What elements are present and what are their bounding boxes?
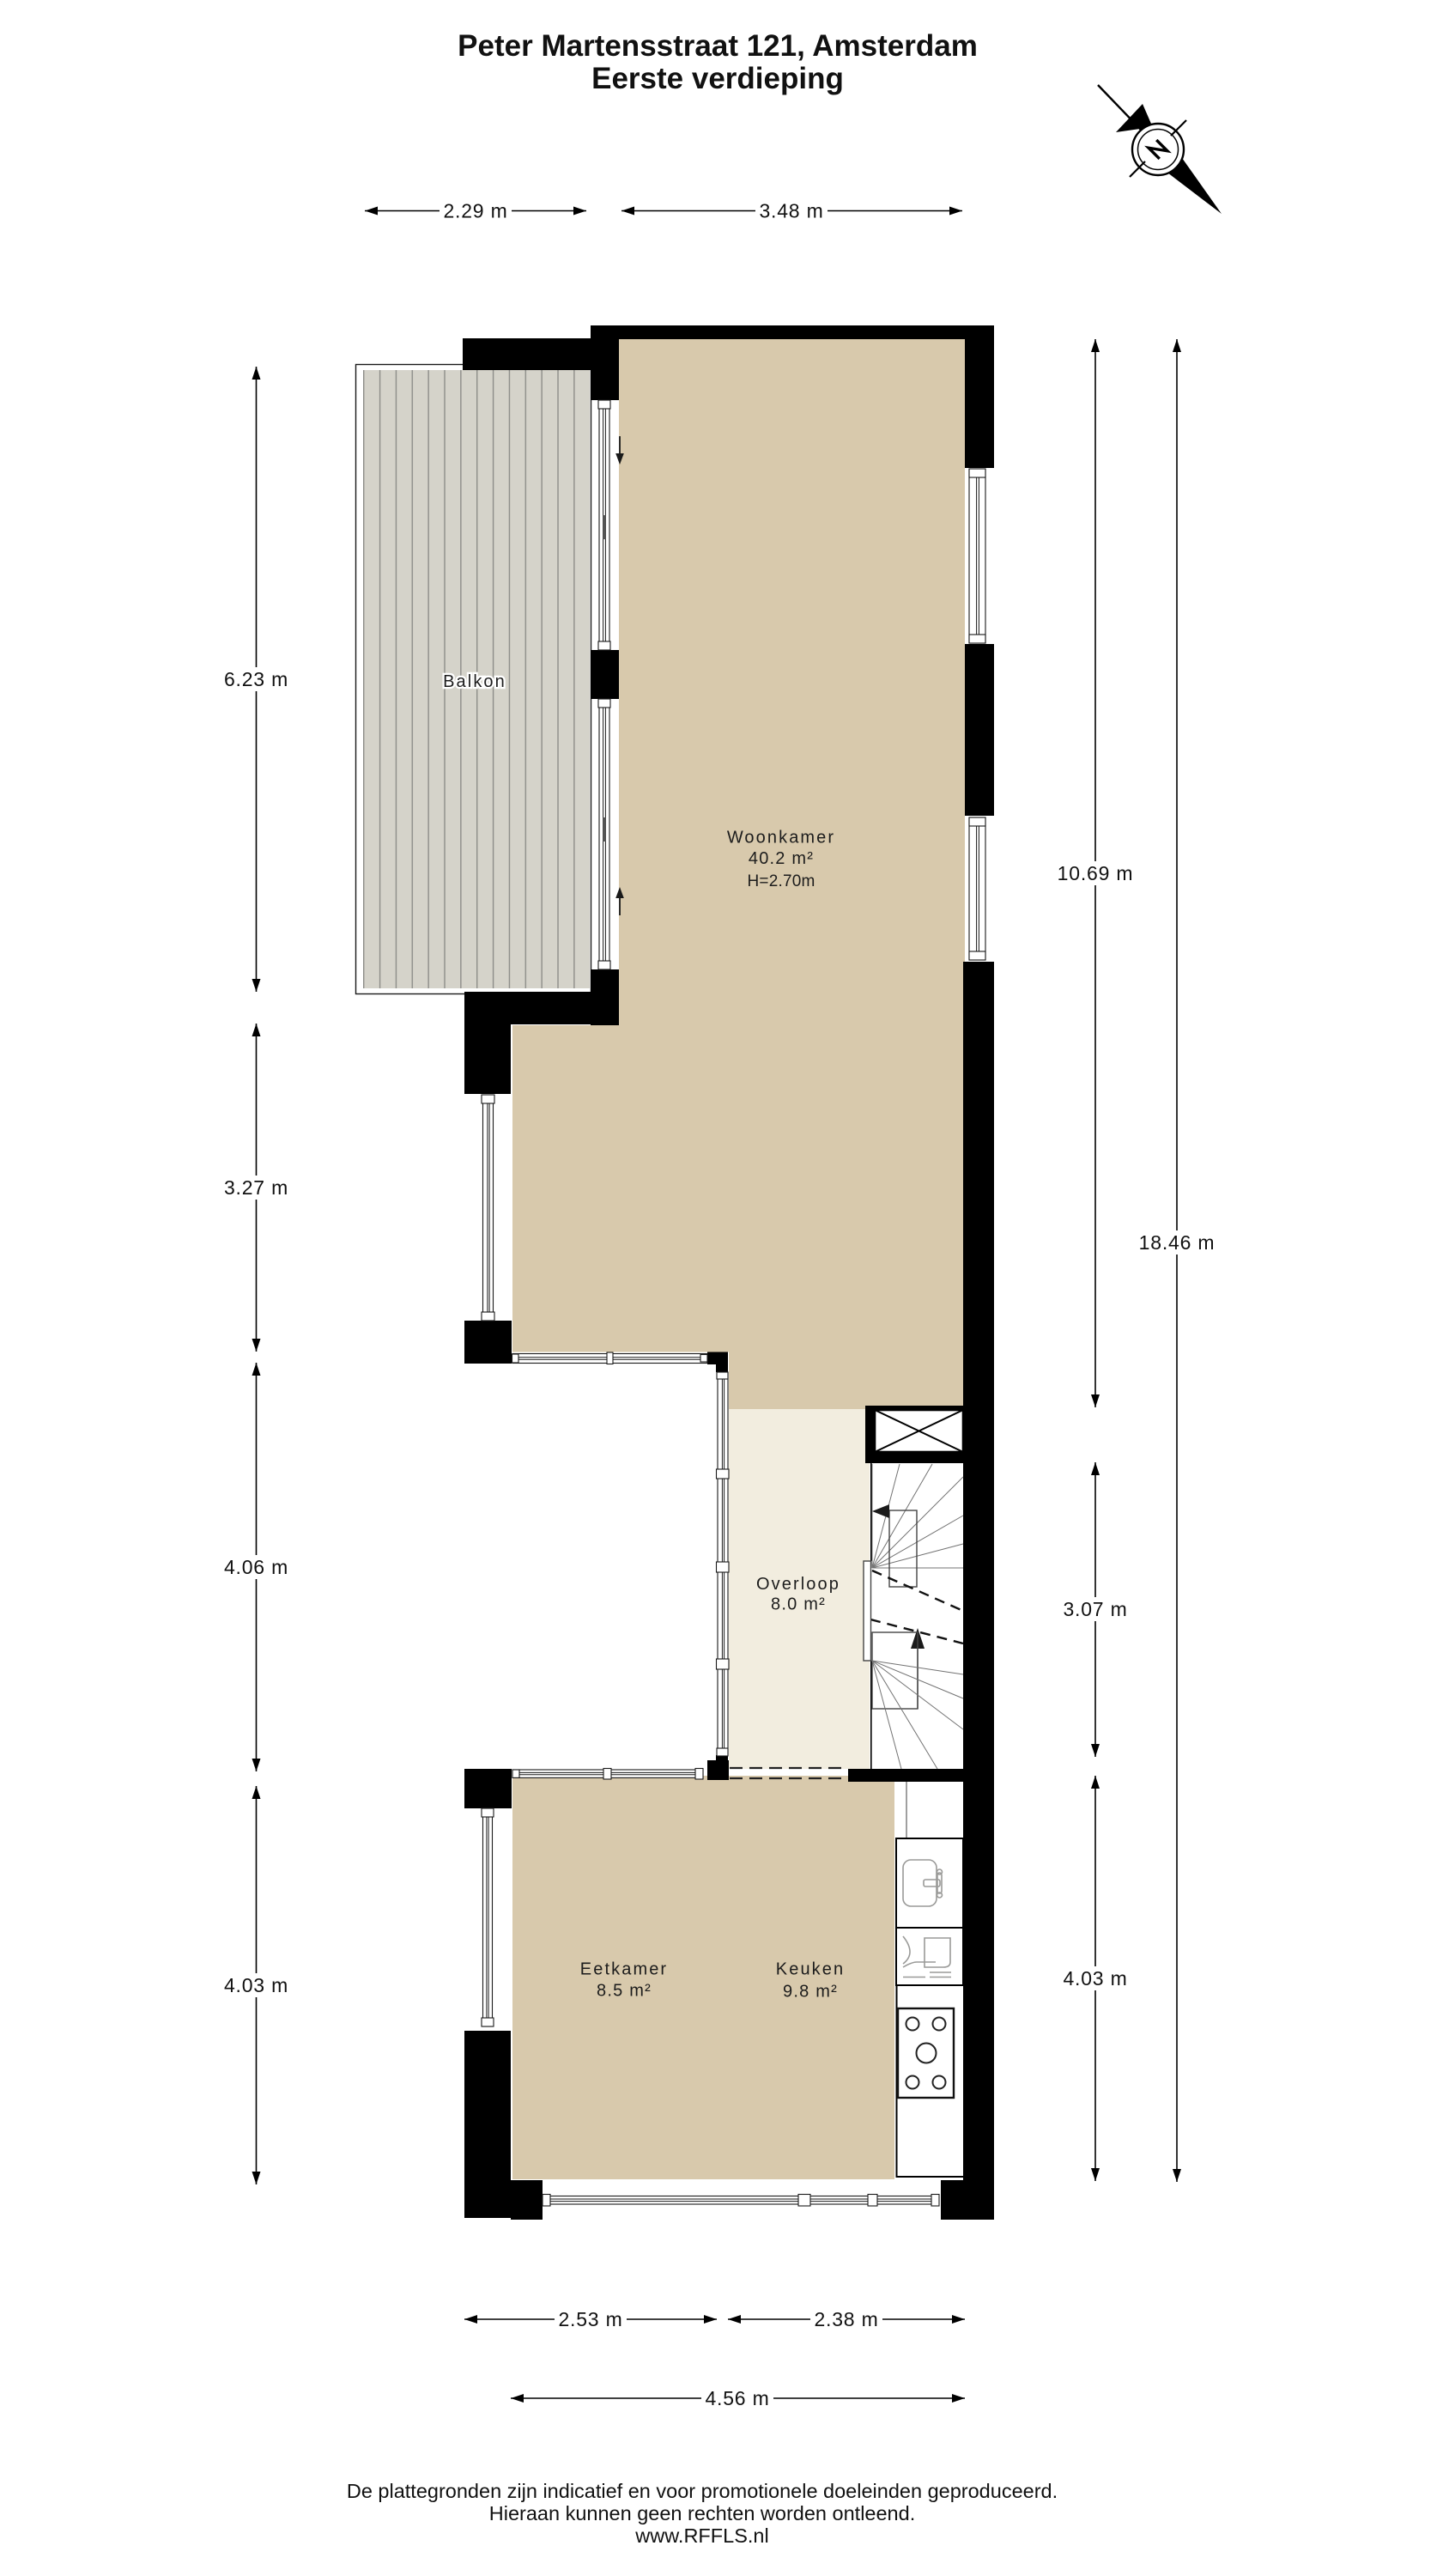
svg-text:9.8 m²: 9.8 m² [783, 1983, 838, 2002]
svg-text:3.27 m: 3.27 m [224, 1176, 288, 1199]
svg-text:Eerste verdieping: Eerste verdieping [591, 62, 844, 95]
svg-text:8.5 m²: 8.5 m² [597, 1982, 652, 2001]
svg-text:Eetkamer: Eetkamer [580, 1960, 668, 1979]
svg-text:40.2 m²: 40.2 m² [749, 849, 814, 868]
svg-text:2.53 m: 2.53 m [558, 2308, 622, 2330]
svg-text:10.69 m: 10.69 m [1058, 862, 1134, 884]
svg-text:4.56 m: 4.56 m [705, 2387, 769, 2409]
svg-text:3.07 m: 3.07 m [1063, 1598, 1127, 1620]
svg-text:Hieraan kunnen geen rechten wo: Hieraan kunnen geen rechten worden ontle… [489, 2502, 915, 2524]
svg-text:Balkon: Balkon [443, 672, 506, 691]
svg-text:4.03 m: 4.03 m [224, 1974, 288, 1996]
svg-text:4.03 m: 4.03 m [1063, 1967, 1127, 1990]
svg-text:De plattegronden zijn indicati: De plattegronden zijn indicatief en voor… [347, 2480, 1058, 2502]
svg-text:www.RFFLS.nl: www.RFFLS.nl [634, 2524, 768, 2547]
svg-text:18.46 m: 18.46 m [1139, 1231, 1216, 1254]
svg-text:Woonkamer: Woonkamer [727, 829, 835, 848]
svg-text:8.0 m²: 8.0 m² [771, 1595, 826, 1614]
svg-text:4.06 m: 4.06 m [224, 1556, 288, 1578]
svg-text:6.23 m: 6.23 m [224, 668, 288, 690]
svg-text:Peter Martensstraat 121, Amste: Peter Martensstraat 121, Amsterdam [458, 29, 978, 63]
svg-text:2.38 m: 2.38 m [814, 2308, 878, 2330]
svg-text:2.29 m: 2.29 m [443, 200, 507, 222]
svg-text:3.48 m: 3.48 m [759, 200, 823, 222]
svg-text:H=2.70m: H=2.70m [747, 872, 815, 890]
svg-text:Keuken: Keuken [776, 1960, 845, 1979]
svg-text:Overloop: Overloop [756, 1575, 840, 1594]
